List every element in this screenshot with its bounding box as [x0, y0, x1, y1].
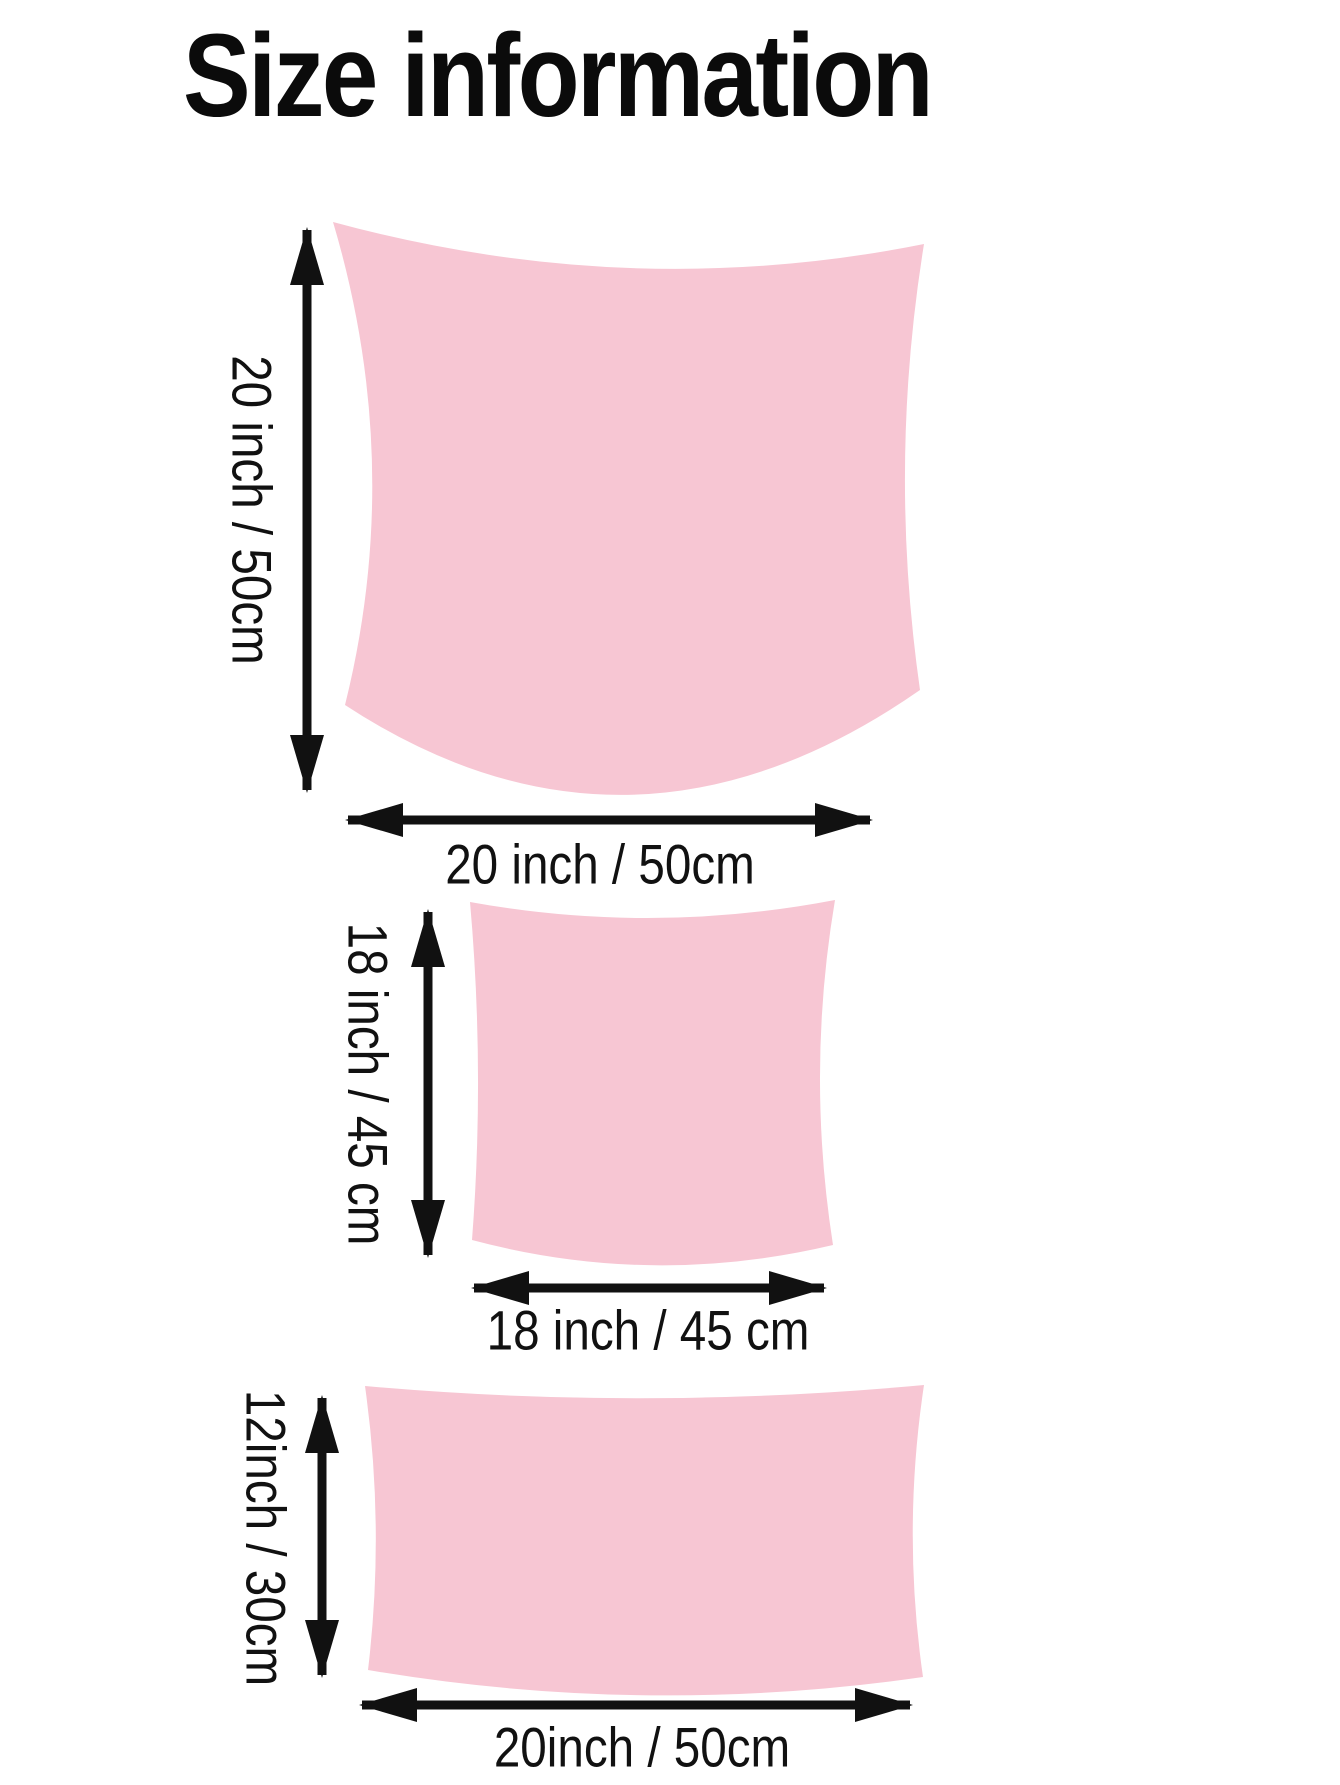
pillow-shape-medium [470, 900, 835, 1265]
width-label-large: 20 inch / 50cm [445, 832, 755, 897]
width-label-medium: 18 inch / 45 cm [487, 1298, 810, 1363]
width-label-lumbar: 20inch / 50cm [494, 1715, 790, 1780]
size-information-diagram: Size information 20 inch / 50cm 20 inch … [0, 0, 1340, 1785]
height-label-lumbar: 12inch / 30cm [234, 1390, 299, 1686]
height-label-large: 20 inch / 50cm [220, 355, 285, 665]
pillow-shape-large [333, 222, 924, 795]
height-label-medium: 18 inch / 45 cm [336, 923, 401, 1246]
pillow-shape-lumbar [365, 1385, 924, 1695]
